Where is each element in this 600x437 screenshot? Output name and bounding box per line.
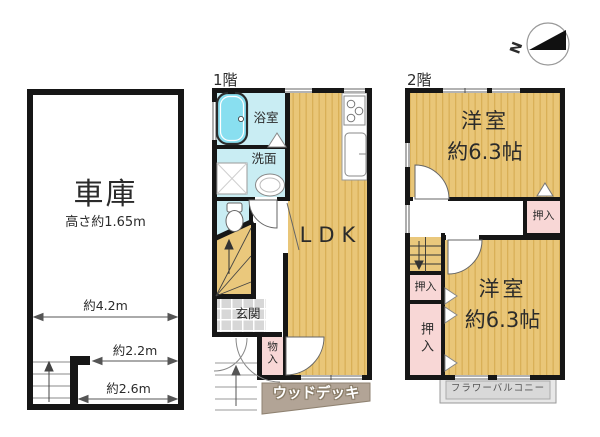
entrance-label: 玄関 [218, 307, 278, 321]
wood-deck-label: ウッドデッキ [262, 386, 370, 403]
ldk-label: LDK [288, 223, 369, 247]
storage-label: 物入 [266, 341, 278, 366]
stove-icon [344, 96, 365, 125]
garage-dim-width: 約4.2m [27, 299, 184, 313]
lower-room-size: 約6.3帖 [445, 308, 560, 332]
entrance-door-arc-left [214, 338, 247, 371]
compass-icon [527, 23, 569, 65]
floor2-title: 2階 [407, 72, 432, 89]
floor1-title: 1階 [213, 72, 238, 89]
washroom-label: 洗面 [238, 152, 290, 166]
wash-basin-icon [256, 174, 285, 196]
lower-room-name: 洋室 [445, 277, 560, 301]
middle-closet-label: 押入 [410, 281, 441, 294]
washing-machine-pan-icon [217, 163, 247, 194]
flower-balcony-label: フラワーバルコニー [447, 384, 549, 395]
upper-room-size: 約6.3帖 [410, 140, 560, 164]
garage-structure [30, 92, 181, 410]
bathroom-label: 浴室 [240, 111, 292, 125]
entrance-up-arrow-icon [232, 366, 240, 406]
upper-room-name: 洋室 [410, 109, 560, 133]
floorplan-canvas: 車庫 高さ約1.65m 約4.2m 約2.2m 約2.6m 1階 浴室 洗面 L… [0, 0, 600, 437]
garage-height-note: 高さ約1.65m [27, 216, 184, 231]
garage-dim-inner-lower: 約2.6m [79, 382, 178, 396]
upper-closet-label: 押入 [527, 210, 560, 223]
garage-dim-inner-upper: 約2.2m [92, 344, 178, 358]
lower-closet-label: 押入 [417, 322, 432, 356]
kitchen-sink-icon [345, 133, 366, 176]
garage-label: 車庫 [27, 178, 184, 213]
toilet-icon [226, 203, 243, 232]
